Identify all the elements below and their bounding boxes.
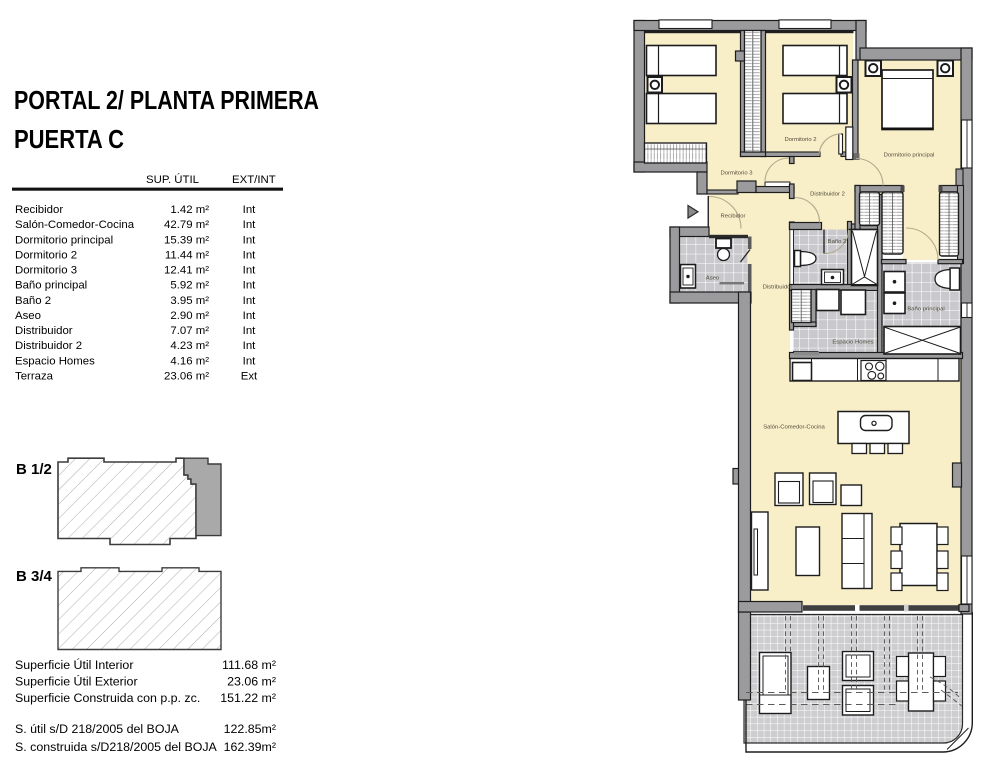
svg-text:Int: Int <box>243 355 256 367</box>
svg-text:Dormitorio principal: Dormitorio principal <box>15 234 113 246</box>
svg-text:Int: Int <box>243 295 256 307</box>
svg-text:Int: Int <box>243 265 256 277</box>
svg-text:Superficie Construida con p.p.: Superficie Construida con p.p. zc. <box>15 691 200 705</box>
svg-text:4.16 m²: 4.16 m² <box>170 355 209 367</box>
svg-text:Dormitorio 2: Dormitorio 2 <box>15 249 77 261</box>
svg-text:111.68 m²: 111.68 m² <box>222 658 276 672</box>
svg-text:3.95 m²: 3.95 m² <box>170 295 209 307</box>
svg-text:162.39m²: 162.39m² <box>224 740 276 754</box>
svg-text:Espacio Homes: Espacio Homes <box>15 355 95 367</box>
svg-text:Int: Int <box>243 340 256 352</box>
svg-text:Salón-Comedor-Cocina: Salón-Comedor-Cocina <box>15 219 135 231</box>
svg-text:Recibidor: Recibidor <box>15 204 63 216</box>
svg-text:11.44 m²: 11.44 m² <box>165 249 209 261</box>
svg-text:Int: Int <box>243 310 256 322</box>
svg-text:EXT/INT: EXT/INT <box>232 174 276 186</box>
svg-text:1.42 m²: 1.42 m² <box>170 204 209 216</box>
svg-text:Salón-Comedor-Cocina: Salón-Comedor-Cocina <box>763 425 825 431</box>
svg-text:Distribuidor 2: Distribuidor 2 <box>810 192 845 198</box>
svg-text:Int: Int <box>243 280 256 292</box>
svg-text:Baño principal: Baño principal <box>15 280 87 292</box>
svg-text:S. útil s/D 218/2005 del BOJA: S. útil s/D 218/2005 del BOJA <box>15 722 180 736</box>
svg-text:Int: Int <box>243 219 256 231</box>
svg-text:Superficie Útil Interior: Superficie Útil Interior <box>15 657 133 672</box>
svg-text:2.90 m²: 2.90 m² <box>170 310 209 322</box>
svg-text:Aseo: Aseo <box>15 310 41 322</box>
svg-text:151.22 m²: 151.22 m² <box>220 691 276 705</box>
svg-text:B 1/2: B 1/2 <box>16 461 52 478</box>
svg-text:Baño 2: Baño 2 <box>828 239 847 245</box>
svg-text:Aseo: Aseo <box>706 276 720 282</box>
svg-text:Dormitorio 2: Dormitorio 2 <box>784 137 816 143</box>
svg-text:Distribuidor 2: Distribuidor 2 <box>15 340 82 352</box>
svg-text:Baño principal: Baño principal <box>907 307 944 313</box>
svg-text:7.07 m²: 7.07 m² <box>170 325 209 337</box>
svg-text:Int: Int <box>243 204 256 216</box>
svg-text:4.23 m²: 4.23 m² <box>170 340 209 352</box>
svg-text:PORTAL 2/ PLANTA PRIMERA: PORTAL 2/ PLANTA PRIMERA <box>14 87 319 115</box>
svg-text:23.06 m²: 23.06 m² <box>164 370 209 382</box>
svg-text:Espacio Homes: Espacio Homes <box>832 340 873 346</box>
svg-text:Dormitorio 3: Dormitorio 3 <box>15 265 77 277</box>
svg-text:Superficie Útil Exterior: Superficie Útil Exterior <box>15 674 138 689</box>
svg-text:122.85m²: 122.85m² <box>224 722 276 736</box>
svg-text:SUP. ÚTIL: SUP. ÚTIL <box>146 173 199 186</box>
svg-text:PUERTA C: PUERTA C <box>14 126 124 154</box>
svg-text:5.92 m²: 5.92 m² <box>170 280 209 292</box>
svg-text:15.39 m²: 15.39 m² <box>164 234 209 246</box>
svg-text:Baño 2: Baño 2 <box>15 295 51 307</box>
svg-text:Int: Int <box>243 249 256 261</box>
svg-text:42.79 m²: 42.79 m² <box>164 219 209 231</box>
svg-text:Dormitorio principal: Dormitorio principal <box>884 153 935 159</box>
svg-text:12.41 m²: 12.41 m² <box>164 265 209 277</box>
svg-text:B 3/4: B 3/4 <box>16 568 53 585</box>
svg-text:Ext: Ext <box>241 370 258 382</box>
svg-text:Distribuidor: Distribuidor <box>763 285 793 291</box>
svg-text:Distribuidor: Distribuidor <box>15 325 73 337</box>
svg-text:S. construida s/D218/2005 del: S. construida s/D218/2005 del BOJA <box>15 740 218 754</box>
svg-text:Recibidor: Recibidor <box>721 214 746 220</box>
svg-text:23.06 m²: 23.06 m² <box>227 675 276 689</box>
svg-text:Int: Int <box>243 325 256 337</box>
svg-text:Terraza: Terraza <box>15 370 54 382</box>
svg-text:Int: Int <box>243 234 256 246</box>
svg-text:Dormitorio 3: Dormitorio 3 <box>720 171 753 177</box>
